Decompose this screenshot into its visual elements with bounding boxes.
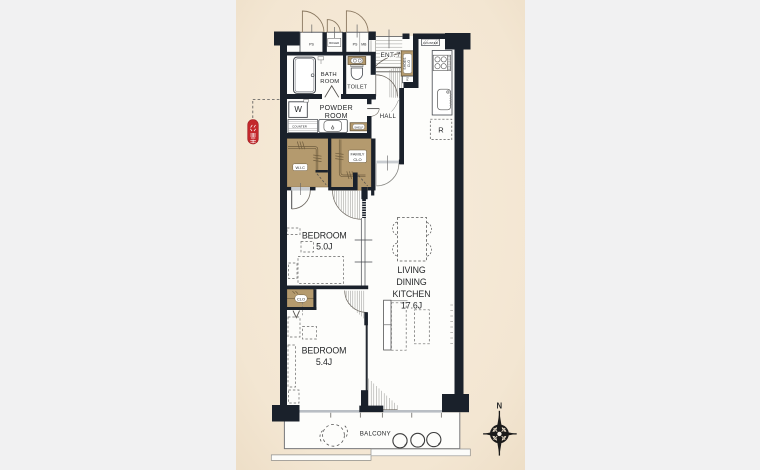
svg-text:LIVING: LIVING: [397, 265, 426, 275]
svg-text:COUNTER: COUNTER: [423, 41, 439, 45]
svg-text:TOILET: TOILET: [347, 85, 367, 91]
svg-text:SHELF: SHELF: [354, 125, 363, 129]
svg-text:COUNTER: COUNTER: [292, 124, 308, 128]
svg-text:ROOM: ROOM: [325, 113, 348, 120]
svg-text:N: N: [496, 402, 502, 411]
svg-text:PS: PS: [309, 42, 314, 46]
svg-text:DINING: DINING: [396, 277, 426, 287]
svg-text:BOILER: BOILER: [329, 41, 339, 45]
svg-text:CLO: CLO: [353, 157, 361, 162]
svg-text:POWDER: POWDER: [320, 105, 353, 112]
svg-text:HALL: HALL: [380, 114, 397, 120]
svg-text:BEDROOM: BEDROOM: [302, 231, 347, 241]
svg-text:R: R: [438, 126, 444, 135]
svg-text:MB: MB: [361, 42, 367, 46]
svg-text:PS: PS: [353, 42, 358, 46]
svg-text:BEDROOM: BEDROOM: [302, 345, 347, 355]
svg-text:ROOM: ROOM: [320, 79, 339, 85]
svg-text:W.I.C: W.I.C: [295, 165, 305, 170]
svg-text:KITCHEN: KITCHEN: [393, 289, 431, 299]
svg-text:ENT.: ENT.: [380, 52, 395, 59]
svg-text:FAMILY: FAMILY: [351, 152, 365, 157]
svg-text:17.6J: 17.6J: [401, 301, 422, 311]
svg-text:BALCONY: BALCONY: [360, 430, 391, 437]
svg-text:W: W: [294, 105, 302, 114]
svg-text:5.4J: 5.4J: [316, 357, 332, 367]
svg-text:CLO: CLO: [407, 60, 411, 67]
svg-text:CLO: CLO: [297, 296, 305, 301]
svg-text:5.0J: 5.0J: [316, 242, 332, 252]
svg-text:BATH: BATH: [321, 72, 337, 78]
svg-text:PS: PS: [406, 77, 410, 81]
